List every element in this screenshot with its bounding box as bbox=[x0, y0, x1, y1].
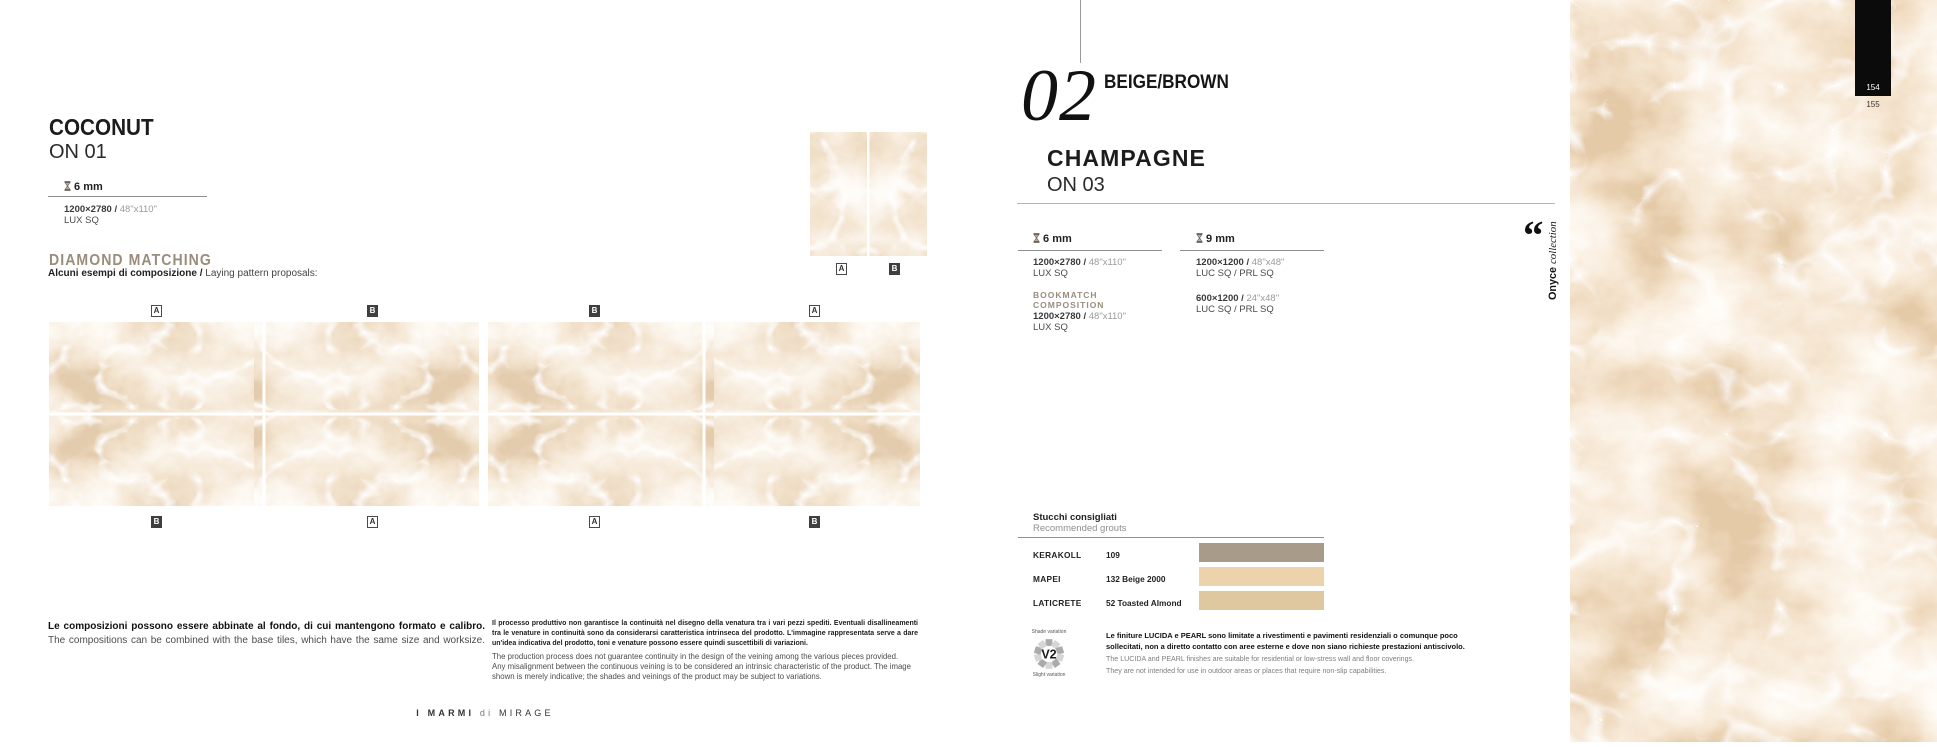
svg-text:V2: V2 bbox=[1041, 648, 1056, 662]
